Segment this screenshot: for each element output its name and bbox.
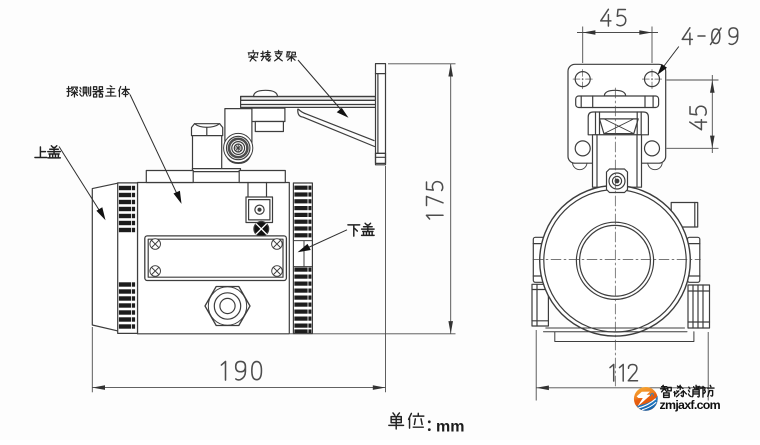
svg-text:zmjaxf.com: zmjaxf.com xyxy=(660,398,721,412)
svg-text:mm: mm xyxy=(436,419,464,436)
